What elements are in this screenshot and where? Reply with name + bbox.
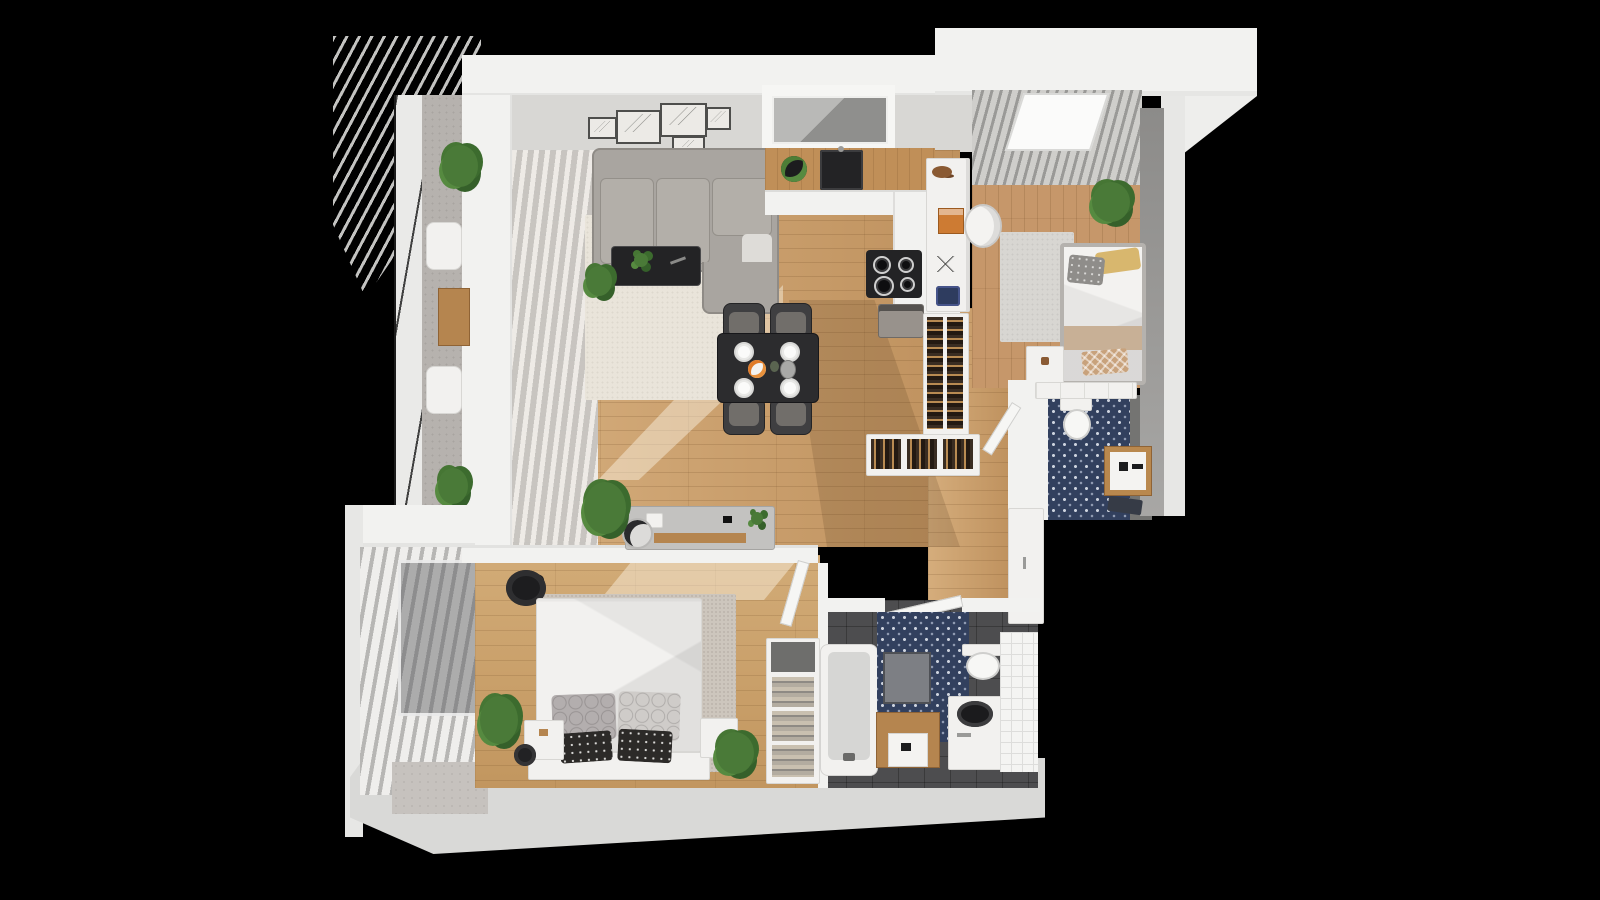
hall-basket [622,518,653,549]
books [927,317,943,429]
white-tile-wall [1000,632,1038,772]
main-bathroom-top-wall [828,598,885,612]
fruit-plate [748,360,766,378]
towel-rolls [772,677,814,707]
balcony-plant-bottom [438,468,468,504]
bookshelf-low [866,434,980,476]
sofa-cushion [712,178,772,236]
living-plant [586,266,612,296]
outer-wall-right-diagonal [1183,96,1257,154]
faucet [838,146,844,152]
bookshelf-vertical [923,313,969,437]
small-bathroom-shelf-row [1035,382,1137,399]
towel-rolls [772,711,814,741]
lower-wing-top-wall [345,505,475,547]
bench-mini-plant [751,512,763,525]
plate [780,342,800,362]
balcony-glass-railing [394,95,424,520]
pillow-dark-dots-left [559,730,613,764]
dining-chair [723,397,765,435]
coffee-machine [878,304,924,338]
books [871,439,901,469]
hall-fern [584,482,626,534]
balcony-chair-1 [426,222,462,270]
remote-control [670,256,686,264]
single-bed-frame [1060,243,1146,385]
main-bathroom-top-wall-2 [962,598,1040,612]
plate [734,378,754,398]
office-nightstand [1026,346,1064,384]
black-stool [514,744,536,766]
lower-balcony-window [398,560,478,716]
books [947,317,963,429]
towel-shelf-column [766,638,820,784]
kitchen-sink [820,150,863,190]
closet-handle [1023,557,1026,569]
books [907,439,937,469]
balcony-table [438,288,470,346]
diamond-pillow [1081,348,1129,376]
outer-wall-top [462,55,974,97]
towel-rolls [772,745,814,777]
washing-machine [948,696,1002,770]
bathroom-vanity [1104,446,1152,496]
desk-deco [936,256,956,272]
outer-wall-top-right-wing [935,28,1257,96]
laundry-box [771,642,815,672]
books [943,439,973,469]
orange-book [938,208,964,234]
wood-vanity [876,712,940,768]
toilet2 [966,652,1000,680]
beige-throw [1064,326,1142,350]
plate [780,378,800,398]
kitchen-window-glass [772,96,888,144]
washer-lid [957,701,993,727]
living-top-wall-face [512,95,972,152]
bathtub [820,644,878,776]
wall-art-3 [660,103,707,137]
blue-pillow [936,286,960,306]
bedroom-plant-right [716,732,754,774]
balcony-plant-top [442,145,478,187]
gray-dot-pillow [1067,254,1106,286]
flower-vase [770,361,779,372]
office-plant [1092,182,1130,222]
bathroom-mirror [883,652,931,704]
plate [734,342,754,362]
tub-faucet [843,753,855,761]
console-plant [634,253,648,267]
toilet [1063,409,1091,440]
media-console [612,247,700,285]
bench-wood-shelf [654,533,746,543]
lower-balcony-floor [392,762,488,814]
cooktop [866,250,922,298]
bench-phone [723,516,732,523]
balcony-chair-2 [426,366,462,414]
pillow-dark-dots-right [617,729,673,764]
bedroom-plant-left [480,696,518,744]
pitcher [780,360,796,379]
floor-plan-render [0,0,1600,900]
herb-tray [781,156,807,182]
wall-art-1 [588,117,617,139]
outer-wall-right [1161,96,1185,516]
wall-art-4 [706,107,731,130]
wall-art-2 [616,110,661,144]
dining-chair [770,397,812,435]
desk-chair [964,204,1002,248]
dining-table [718,334,818,402]
small-bathroom-left-wall [1008,380,1048,520]
cat [932,166,952,178]
